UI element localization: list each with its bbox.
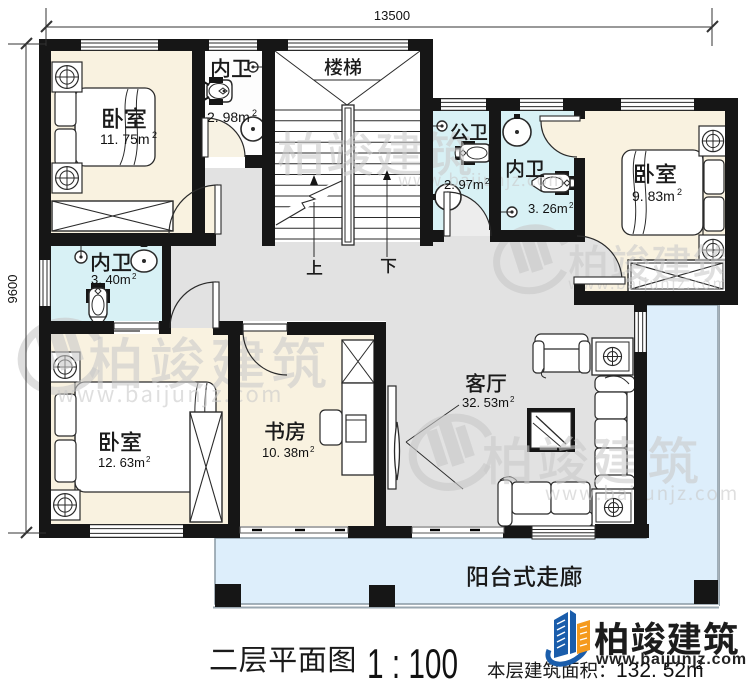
svg-text:13500: 13500 — [374, 8, 410, 23]
svg-text:www.baijunjz.com: www.baijunjz.com — [595, 651, 747, 668]
svg-text:1 : 100: 1 : 100 — [367, 640, 458, 684]
svg-text:2: 2 — [310, 445, 315, 454]
svg-text:2: 2 — [132, 272, 137, 281]
svg-text:2: 2 — [569, 201, 574, 210]
svg-text:3. 26m: 3. 26m — [528, 201, 568, 216]
svg-text:9600: 9600 — [5, 275, 20, 304]
svg-text:2: 2 — [252, 108, 257, 118]
svg-text:2. 97m: 2. 97m — [444, 177, 484, 192]
svg-text:2: 2 — [152, 130, 157, 140]
svg-text:2: 2 — [146, 455, 151, 464]
svg-text:3. 40m: 3. 40m — [91, 272, 131, 287]
svg-text:2: 2 — [510, 395, 515, 404]
svg-text:12. 63m: 12. 63m — [98, 455, 145, 470]
svg-text:10. 38m: 10. 38m — [262, 445, 309, 460]
svg-text:9. 83m: 9. 83m — [632, 188, 675, 204]
svg-text:2: 2 — [677, 187, 682, 197]
svg-text:32. 53m: 32. 53m — [462, 395, 509, 410]
svg-text:2: 2 — [485, 177, 490, 186]
svg-text:11. 75m: 11. 75m — [100, 131, 150, 147]
svg-text:2. 98m: 2. 98m — [207, 109, 250, 125]
